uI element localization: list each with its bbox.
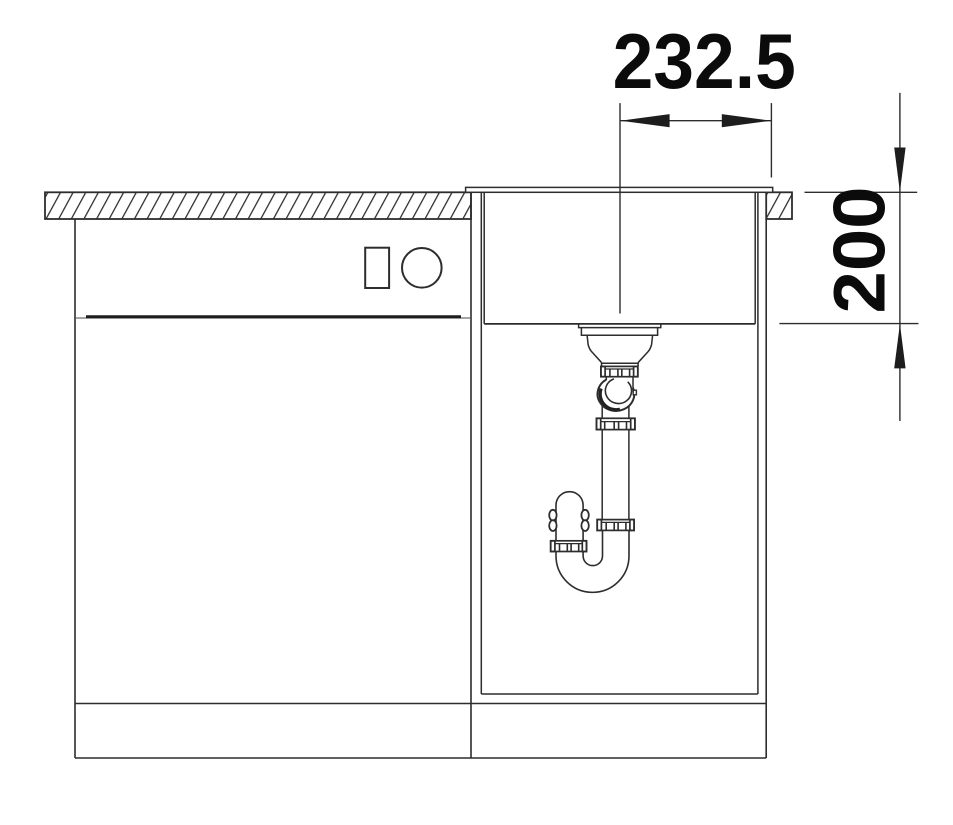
svg-text:232.5: 232.5 bbox=[613, 17, 796, 105]
svg-text:200: 200 bbox=[820, 187, 901, 314]
